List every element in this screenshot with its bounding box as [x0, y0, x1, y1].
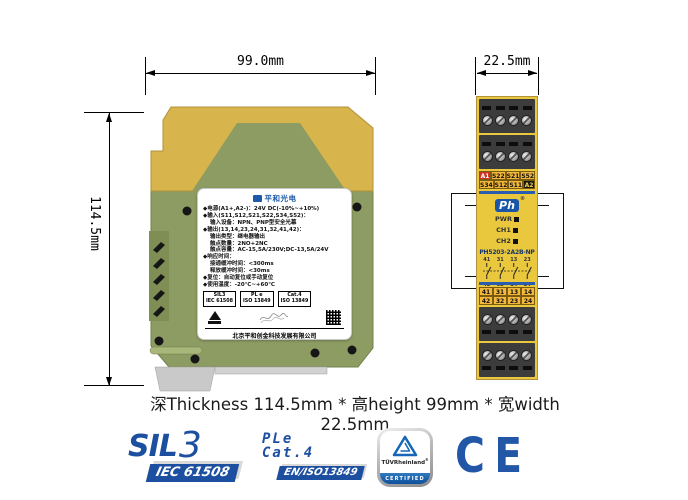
terminal-screw: [521, 314, 532, 325]
terminal-label: S52: [520, 171, 535, 180]
brand-logo-text: 平和光电: [265, 193, 297, 204]
terminal-slots: [481, 106, 533, 110]
terminal-label-row: S34 S12 S11 A2: [479, 180, 535, 189]
depth-dimension-tick-right: [538, 57, 539, 95]
dimension-arrow-right-icon: [528, 70, 537, 76]
terminal-screw: [521, 350, 532, 361]
sil3-text: SIL 3: [128, 431, 253, 461]
terminal-screw: [495, 115, 506, 126]
sil3-badge: SIL 3 IEC 61508: [128, 431, 253, 482]
height-dimension-tick-top: [84, 112, 144, 113]
brand-logo-icon: [253, 195, 262, 202]
din-rail-edge: [215, 367, 327, 374]
blue-band: [479, 282, 535, 285]
model-number: PH5203-2A2B-NP: [479, 249, 534, 256]
ce-mark: CE: [455, 430, 532, 482]
terminal-label: A2: [523, 180, 535, 189]
iec-61508-ribbon: IEC 61508: [146, 464, 240, 482]
height-dimension-label: 114.5mm: [87, 196, 102, 251]
terminal-screw: [495, 151, 506, 162]
product-spec-label: 平和光电 ◆电源(A1+,A2-)：24V DC(-10%~+10%) ◆输入(…: [197, 188, 352, 340]
top-terminal-labels: A1 S22 S21 S52 S34 S12 S11 A2: [479, 171, 535, 189]
terminal-screws: [481, 115, 533, 126]
terminal-block: [479, 343, 535, 377]
din-rail-stub: [465, 205, 476, 206]
din-rail-stub: [538, 276, 549, 277]
screw-dot: [155, 337, 164, 346]
cert-box-line: ISO 13849: [281, 299, 309, 305]
depth-dimension-label: 22.5mm: [472, 54, 542, 69]
din-rail-bracket-right: [538, 193, 564, 289]
registered-mark: ®: [520, 196, 525, 202]
screw-dot: [348, 346, 357, 355]
label-brand-row: 平和光电: [203, 193, 346, 204]
qr-code: [326, 310, 341, 325]
screw-dot: [311, 349, 320, 358]
tuv-badge-inner: TÜVRheinland® CERTIFIED: [380, 431, 430, 484]
spec-line: 输入设备：NPN、PNP型安全光幕: [203, 220, 346, 227]
terminal-label-row: A1 S22 S21 S52: [479, 171, 535, 180]
led-indicator: [514, 217, 519, 222]
ph-logo-text: Ph: [499, 199, 515, 212]
spec-line: ◆输出(13,14,23,24,31,32,41,42)：: [203, 227, 346, 234]
depth-dimension-tick-left: [475, 57, 476, 95]
terminal-slots: [481, 330, 533, 334]
width-dimension-label: 99.0mm: [145, 54, 376, 69]
terminal-block: [479, 135, 535, 169]
side-slot: [150, 347, 202, 354]
led-indicator: [513, 239, 518, 244]
spec-line: ◆使用温度：-20℃~+60℃: [203, 282, 346, 289]
dimension-arrow-left-icon: [146, 70, 155, 76]
dimension-arrow-up-icon: [106, 113, 112, 122]
terminal-screw: [482, 314, 493, 325]
spec-line: ◆电源(A1+,A2-)：24V DC(-10%~+10%): [203, 206, 346, 213]
terminal-label: S34: [479, 180, 494, 189]
terminal-screws: [481, 151, 533, 162]
label-cert-boxes: SIL3 IEC 61508 PL e ISO 13849 Cat.4 ISO …: [203, 291, 346, 306]
terminal-label: S12: [494, 180, 509, 189]
height-dimension-tick-bottom: [84, 385, 144, 386]
terminal-label: 23: [507, 296, 521, 305]
terminal-label: 14: [521, 287, 535, 296]
terminal-screw: [482, 350, 493, 361]
width-dimension-tick-left: [145, 57, 146, 95]
din-rail-stub: [538, 205, 549, 206]
terminal-block: [479, 307, 535, 341]
cert-box-line: ISO 13849: [243, 299, 271, 305]
terminal-label: S21: [506, 171, 521, 180]
dimension-arrow-left-icon: [477, 70, 486, 76]
label-divider: [205, 328, 344, 329]
led-row-ch2: CH2: [496, 237, 518, 245]
screw-dot: [191, 355, 200, 364]
din-rail-stub: [465, 276, 476, 277]
terminal-screw: [482, 151, 493, 162]
width-dimension-line: [146, 73, 375, 74]
terminal-label: S11: [508, 180, 523, 189]
terminal-label: 42: [479, 296, 493, 305]
cert-box-cat: Cat.4 ISO 13849: [278, 291, 312, 306]
spec-line: ◆复位：自动复位或手动复位: [203, 275, 346, 282]
height-dimension-line: [109, 113, 110, 385]
cert-box-sil: SIL3 IEC 61508: [203, 291, 236, 306]
terminal-label: A1: [479, 171, 491, 180]
module-face: Ph ® PWR CH1 CH2 PH5203-2A2B-NP 41 31 13: [479, 196, 535, 280]
terminal-screw: [495, 350, 506, 361]
label-marks-row: [203, 309, 346, 327]
terminal-slots: [481, 142, 533, 146]
product-dimension-drawing: 99.0mm 22.5mm 114.5mm: [0, 0, 688, 500]
terminal-label: 31: [493, 287, 507, 296]
terminal-block: [479, 99, 535, 133]
tuv-brand-text: TÜVRheinland®: [381, 458, 428, 466]
terminal-screw: [508, 151, 519, 162]
terminal-label: 24: [521, 296, 535, 305]
terminal-screw: [521, 151, 532, 162]
company-name: 北京平和创金科技发展有限公司: [203, 331, 346, 340]
terminal-label: S22: [491, 171, 506, 180]
spec-line: 输出类型：继电器输出: [203, 234, 346, 241]
terminal-label: 32: [493, 296, 507, 305]
tuv-mark-icon: [208, 311, 221, 324]
screw-dot: [183, 207, 192, 216]
blue-band: [479, 191, 535, 194]
cert-box-pl: PL e ISO 13849: [240, 291, 274, 306]
spec-line: ◆输入(S11,S12,S21,S22,S34,S52)：: [203, 213, 346, 220]
led-row-pwr: PWR: [495, 215, 519, 223]
flourish-icon: [259, 311, 289, 325]
terminal-screw: [508, 350, 519, 361]
terminal-slots: [481, 366, 533, 370]
terminal-label: 13: [507, 287, 521, 296]
led-row-ch1: CH1: [496, 226, 518, 234]
tuv-rheinland-badge: TÜVRheinland® CERTIFIED: [377, 428, 433, 487]
en-iso-13849-ribbon: EN/ISO13849: [276, 466, 365, 480]
ple-text: PLe: [262, 432, 372, 446]
ple-cat4-badge: PLe Cat.4 EN/ISO13849: [262, 432, 372, 480]
terminal-screws: [481, 314, 533, 325]
terminal-label-row: 41 31 13 14: [479, 287, 535, 296]
tuv-triangle-icon: [392, 435, 418, 457]
cert-box-line: IEC 61508: [206, 299, 233, 305]
tuv-certified-bar: CERTIFIED: [380, 473, 430, 484]
terminal-label: 41: [479, 287, 493, 296]
dimension-arrow-right-icon: [366, 70, 375, 76]
terminal-label-row: 42 32 23 24: [479, 296, 535, 305]
bottom-terminal-labels: 41 31 13 14 42 32 23 24: [479, 287, 535, 305]
cat4-text: Cat.4: [262, 446, 372, 460]
din-rail-foot: [155, 367, 215, 391]
terminal-screws: [481, 350, 533, 361]
screw-dot: [353, 203, 362, 212]
front-view-module: A1 S22 S21 S52 S34 S12 S11 A2 Ph ® PWR: [476, 96, 538, 380]
din-rail-bracket-left: [451, 193, 477, 289]
led-indicator: [513, 228, 518, 233]
ph-logo: Ph ®: [495, 199, 519, 212]
terminal-screw: [495, 314, 506, 325]
terminal-screw: [508, 115, 519, 126]
width-dimension-tick-right: [375, 57, 376, 95]
relay-contact-symbols: [480, 263, 534, 279]
terminal-screw: [508, 314, 519, 325]
terminal-screw: [521, 115, 532, 126]
terminal-screw: [482, 115, 493, 126]
